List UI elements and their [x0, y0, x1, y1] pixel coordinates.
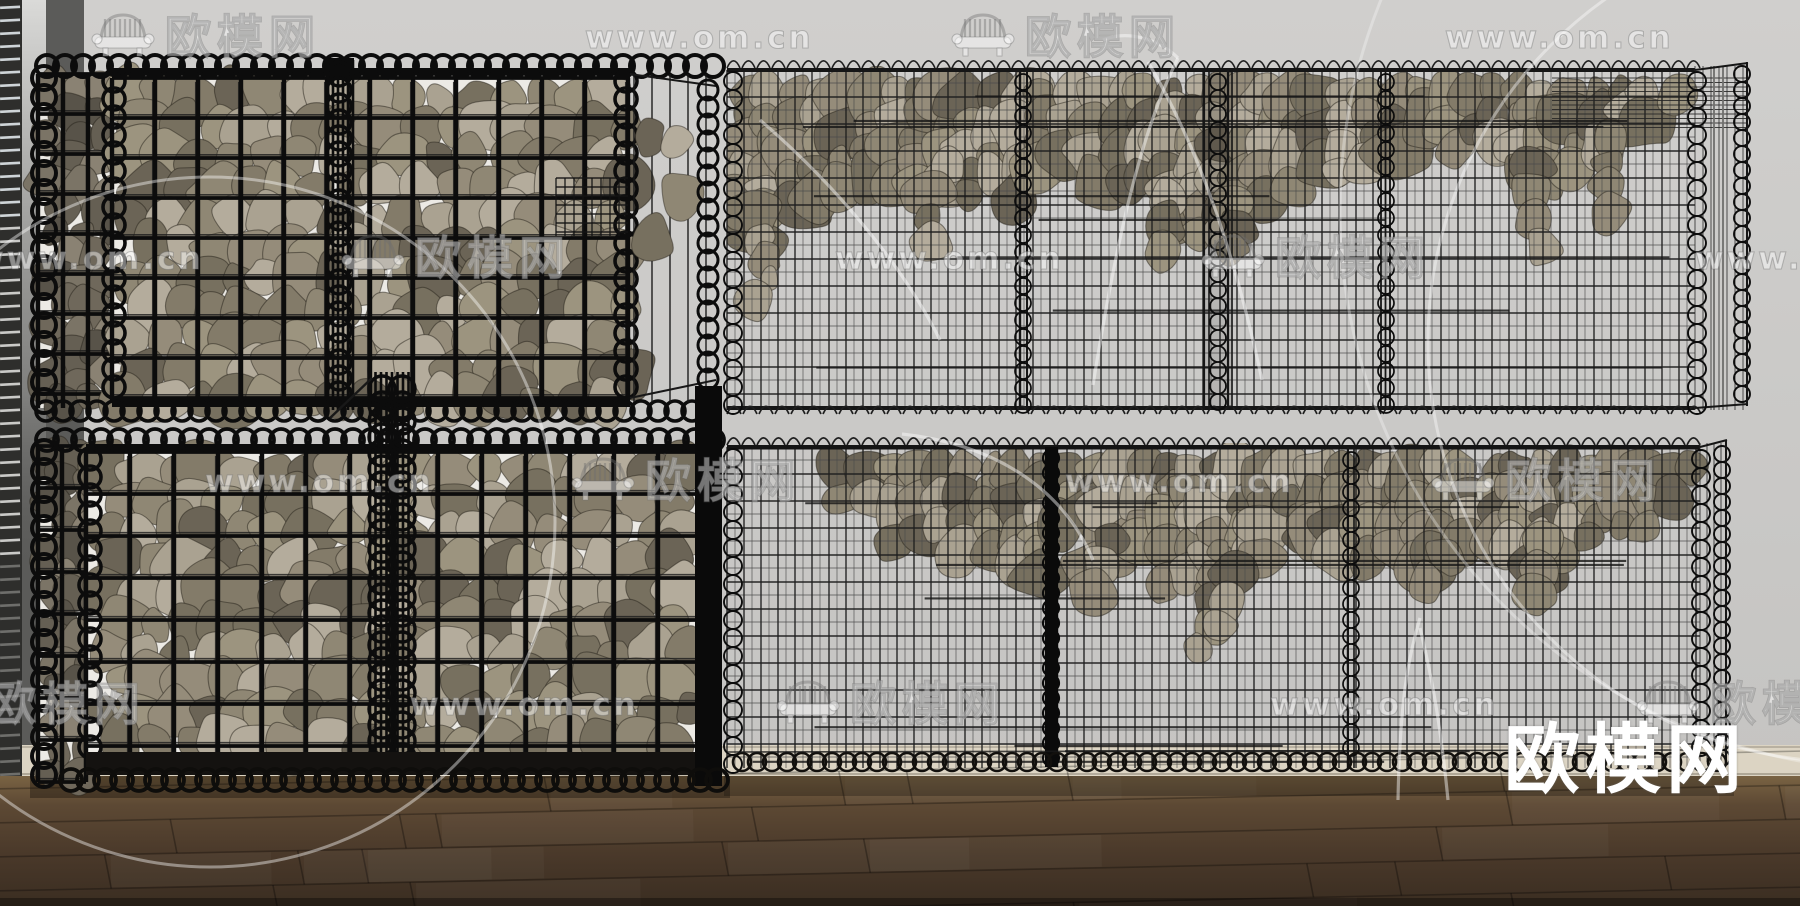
watermark-logo: 欧模网	[1504, 718, 1747, 802]
watermark-brand-text: 欧模网	[1505, 454, 1661, 508]
watermark-site-text: www.om.cn	[1065, 464, 1294, 500]
watermark-site-text: www.om.cn	[1695, 241, 1800, 277]
watermark-site-text: www.om.cn	[1270, 687, 1499, 723]
window-blinds	[0, 0, 22, 790]
watermark-brand-text: 欧模网	[1275, 231, 1431, 285]
watermark-site-text: www.om.cn	[1445, 20, 1674, 56]
watermark-brand-text: 欧模网	[165, 10, 321, 64]
watermark-brand-text: 欧模网	[1025, 10, 1181, 64]
watermark-brand-text: 欧模网	[645, 454, 801, 508]
watermark-brand-text: 欧模网	[850, 677, 1006, 731]
watermark-site-text: www.om.cn	[205, 464, 434, 500]
watermark-brand-text: 欧模网	[0, 677, 146, 731]
watermark-site-text: www.om.cn	[585, 20, 814, 56]
render-viewport: 欧模网www.om.cn欧模网www.om.cn欧模网www.om.cn欧模网w…	[0, 0, 1800, 906]
watermark-site-text: www.om.cn	[410, 687, 639, 723]
watermark-site-text: www.om.cn	[835, 241, 1064, 277]
watermark-brand-text: 欧模网	[415, 231, 571, 285]
watermark-site-text: www.om.cn	[0, 241, 204, 277]
